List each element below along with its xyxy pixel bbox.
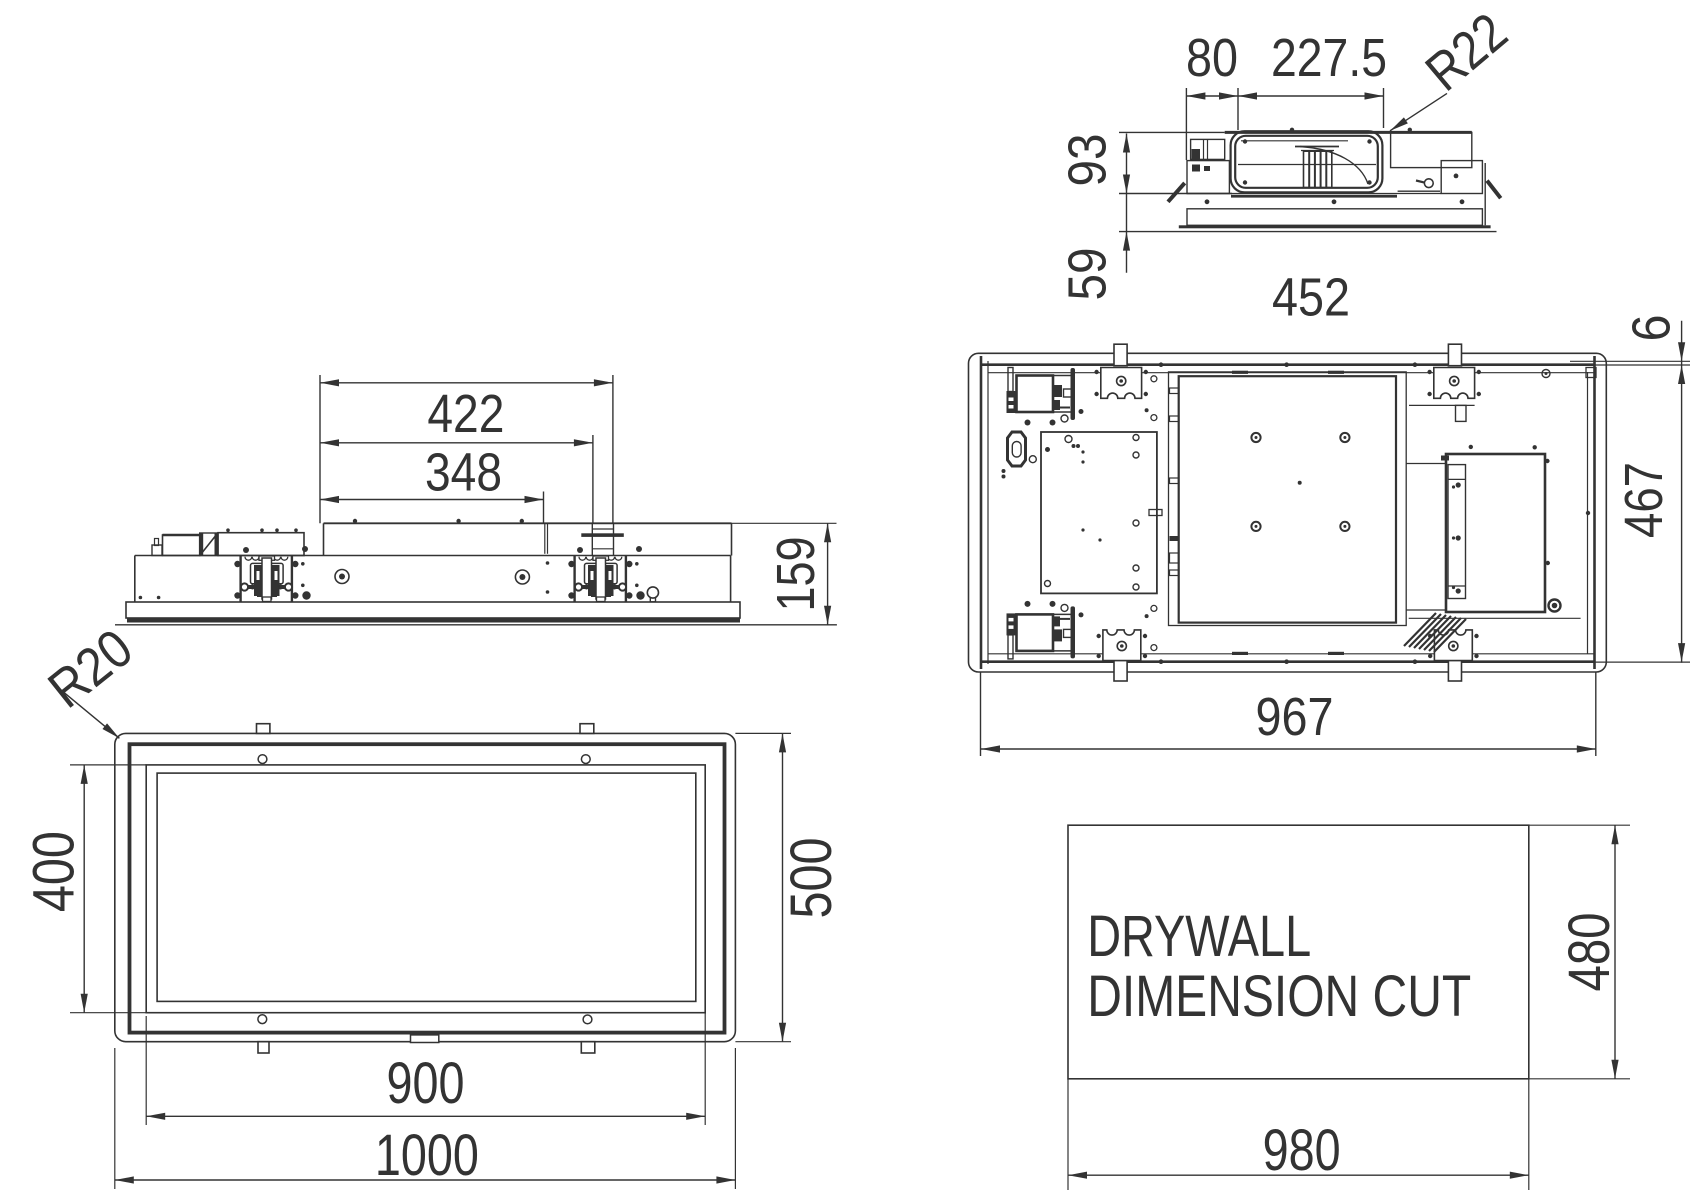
svg-text:6: 6: [1622, 315, 1682, 342]
svg-text:967: 967: [1256, 687, 1334, 747]
svg-text:467: 467: [1614, 462, 1674, 538]
svg-text:500: 500: [779, 838, 844, 919]
svg-text:159: 159: [766, 537, 826, 612]
svg-text:93: 93: [1058, 134, 1118, 187]
svg-text:422: 422: [427, 384, 504, 444]
svg-text:80: 80: [1186, 28, 1238, 88]
svg-text:980: 980: [1263, 1118, 1341, 1183]
svg-text:227.5: 227.5: [1271, 28, 1387, 88]
svg-text:400: 400: [22, 831, 87, 912]
svg-text:1000: 1000: [375, 1123, 479, 1188]
svg-text:DRYWALL: DRYWALL: [1087, 904, 1311, 969]
svg-text:452: 452: [1272, 268, 1350, 328]
svg-text:DIMENSION CUT: DIMENSION CUT: [1087, 964, 1471, 1029]
svg-text:348: 348: [425, 443, 502, 503]
svg-text:59: 59: [1058, 248, 1118, 301]
svg-text:900: 900: [387, 1051, 465, 1116]
svg-text:480: 480: [1557, 913, 1622, 992]
